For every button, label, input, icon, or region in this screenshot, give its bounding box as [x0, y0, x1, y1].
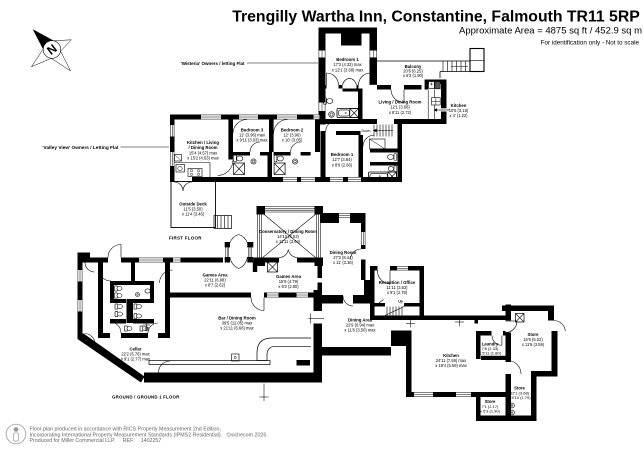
- svg-text:x 5'11 (1.80): x 5'11 (1.80): [479, 351, 501, 356]
- svg-text:x 11'6 (3.50) max: x 11'6 (3.50) max: [344, 328, 375, 333]
- svg-text:Produced for Miller Commercial: Produced for Miller Commercial LLP. REF:…: [30, 438, 162, 444]
- svg-text:x 15'2 (4.63) max: x 15'2 (4.63) max: [187, 156, 219, 161]
- svg-text:Approximate Area = 4875 sq ft: Approximate Area = 4875 sq ft / 452.9 sq…: [459, 26, 642, 37]
- svg-text:x 8'9 (2.66): x 8'9 (2.66): [332, 162, 353, 167]
- svg-text:'Valley View' Owners / Letting: 'Valley View' Owners / Letting Flat: [42, 145, 119, 151]
- svg-text:x 11'11 (3.64): x 11'11 (3.64): [276, 239, 301, 244]
- svg-text:x 9'1 (2.78): x 9'1 (2.78): [387, 290, 408, 295]
- svg-text:x 21'11 (6.68) max: x 21'11 (6.68) max: [220, 326, 253, 331]
- svg-text:Down: Down: [362, 129, 371, 133]
- svg-text:x 12'1 (3.68) max: x 12'1 (3.68) max: [332, 67, 364, 72]
- svg-text:x 11' (3.36): x 11' (3.36): [333, 260, 354, 265]
- svg-text:x 4' (1.22): x 4' (1.22): [449, 113, 468, 118]
- svg-text:x 5'10 (1.79): x 5'10 (1.79): [508, 395, 531, 400]
- svg-text:x 8'11 (2.72): x 8'11 (2.72): [389, 110, 412, 115]
- svg-text:'Wisteria' Owners / letting Fl: 'Wisteria' Owners / letting Flat: [181, 61, 245, 66]
- svg-text:x 18'4 (5.59) max: x 18'4 (5.59) max: [435, 363, 467, 368]
- svg-text:Up: Up: [398, 300, 403, 304]
- svg-text:Trengilly Wartha Inn, Constant: Trengilly Wartha Inn, Constantine, Falmo…: [232, 9, 640, 26]
- svg-text:/ Dining Room: / Dining Room: [188, 145, 217, 150]
- svg-text:GROUND / GROUND 1 FLOOR: GROUND / GROUND 1 FLOOR: [112, 395, 180, 400]
- svg-text:x 9'2 (2.80): x 9'2 (2.80): [278, 284, 299, 289]
- svg-text:x 9'11 (3.03) max: x 9'11 (3.03) max: [236, 138, 267, 143]
- svg-text:x 9'1 (2.77) max: x 9'1 (2.77) max: [121, 357, 150, 362]
- svg-text:x 8'7 (2.62): x 8'7 (2.62): [205, 283, 226, 288]
- svg-text:x 6'3 (1.90): x 6'3 (1.90): [403, 73, 424, 78]
- svg-text:FIRST FLOOR: FIRST FLOOR: [169, 236, 202, 241]
- svg-text:x 6'3 (1.90): x 6'3 (1.90): [480, 408, 501, 413]
- svg-text:x 11'4 (3.46): x 11'4 (3.46): [182, 212, 205, 217]
- svg-text:x 11'9 (3.59): x 11'9 (3.59): [522, 342, 545, 347]
- svg-text:For identification only - Not: For identification only - Not to scale: [541, 40, 640, 47]
